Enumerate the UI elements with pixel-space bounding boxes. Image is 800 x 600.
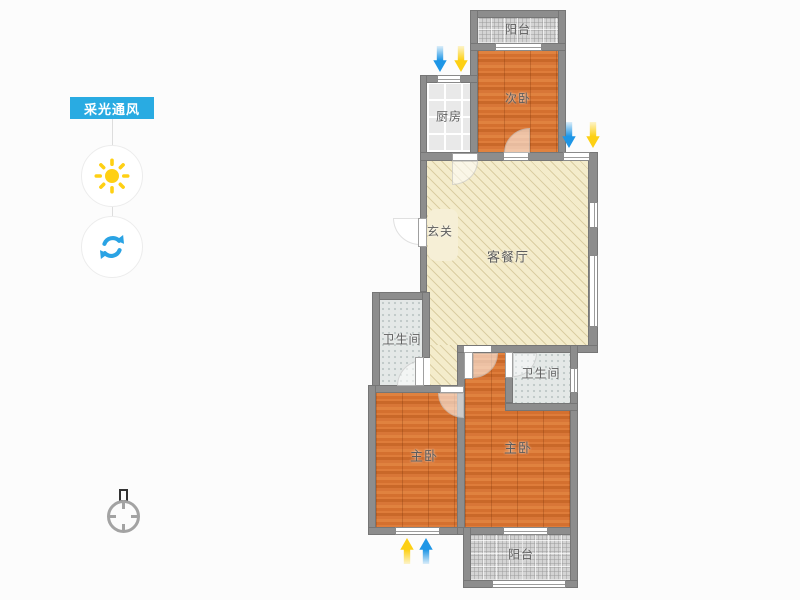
window bbox=[495, 43, 542, 51]
airflow-arrow-icon bbox=[418, 538, 434, 564]
window bbox=[492, 580, 566, 588]
room-label-living-dining: 客餐厅 bbox=[487, 247, 529, 266]
room-label-bedroom-secondary: 次卧 bbox=[505, 90, 531, 107]
wall bbox=[372, 292, 380, 393]
window bbox=[395, 527, 440, 535]
window bbox=[570, 368, 578, 393]
wall bbox=[463, 527, 471, 588]
wall bbox=[470, 10, 566, 18]
floor-living-hall bbox=[430, 345, 457, 385]
room-label-balcony-bottom: 阳台 bbox=[508, 546, 534, 563]
room-label-bathroom-left: 卫生间 bbox=[382, 331, 421, 348]
daylight-arrow-icon bbox=[453, 46, 469, 72]
compass-tick bbox=[122, 524, 125, 532]
floorplan-canvas[interactable]: 阳台 次卧 厨房 玄关 客餐厅 卫生间 卫生间 主卧 主卧 阳台 bbox=[0, 0, 800, 600]
window bbox=[589, 202, 598, 228]
door-leaf-entrance bbox=[418, 218, 427, 247]
room-label-master-left: 主卧 bbox=[410, 446, 438, 465]
compass-tick bbox=[108, 515, 116, 518]
wall bbox=[422, 292, 430, 358]
wall bbox=[505, 403, 578, 411]
door-leaf-kitchen bbox=[452, 153, 478, 161]
door-leaf-bathroom-left bbox=[415, 357, 424, 386]
door-leaf-master-left bbox=[440, 386, 464, 393]
room-label-bathroom-right: 卫生间 bbox=[521, 365, 560, 382]
airflow-arrow-icon bbox=[432, 46, 448, 72]
door-arc-entrance bbox=[393, 218, 420, 245]
room-label-kitchen: 厨房 bbox=[436, 108, 462, 125]
window bbox=[563, 152, 590, 161]
daylight-arrow-icon bbox=[585, 122, 601, 148]
door-leaf-bathroom-right bbox=[505, 352, 513, 378]
room-label-master-right: 主卧 bbox=[504, 438, 532, 457]
window bbox=[503, 152, 529, 161]
window bbox=[437, 75, 461, 83]
wall bbox=[420, 75, 427, 292]
daylight-arrow-icon bbox=[399, 538, 415, 564]
window bbox=[503, 527, 548, 535]
room-label-entry: 玄关 bbox=[427, 223, 453, 240]
wall bbox=[368, 385, 376, 535]
room-label-balcony-top: 阳台 bbox=[505, 21, 531, 38]
compass-tick bbox=[122, 501, 125, 509]
wall bbox=[470, 10, 478, 161]
compass-tick bbox=[131, 515, 139, 518]
door-leaf-master-right bbox=[464, 352, 473, 379]
window bbox=[589, 255, 598, 327]
